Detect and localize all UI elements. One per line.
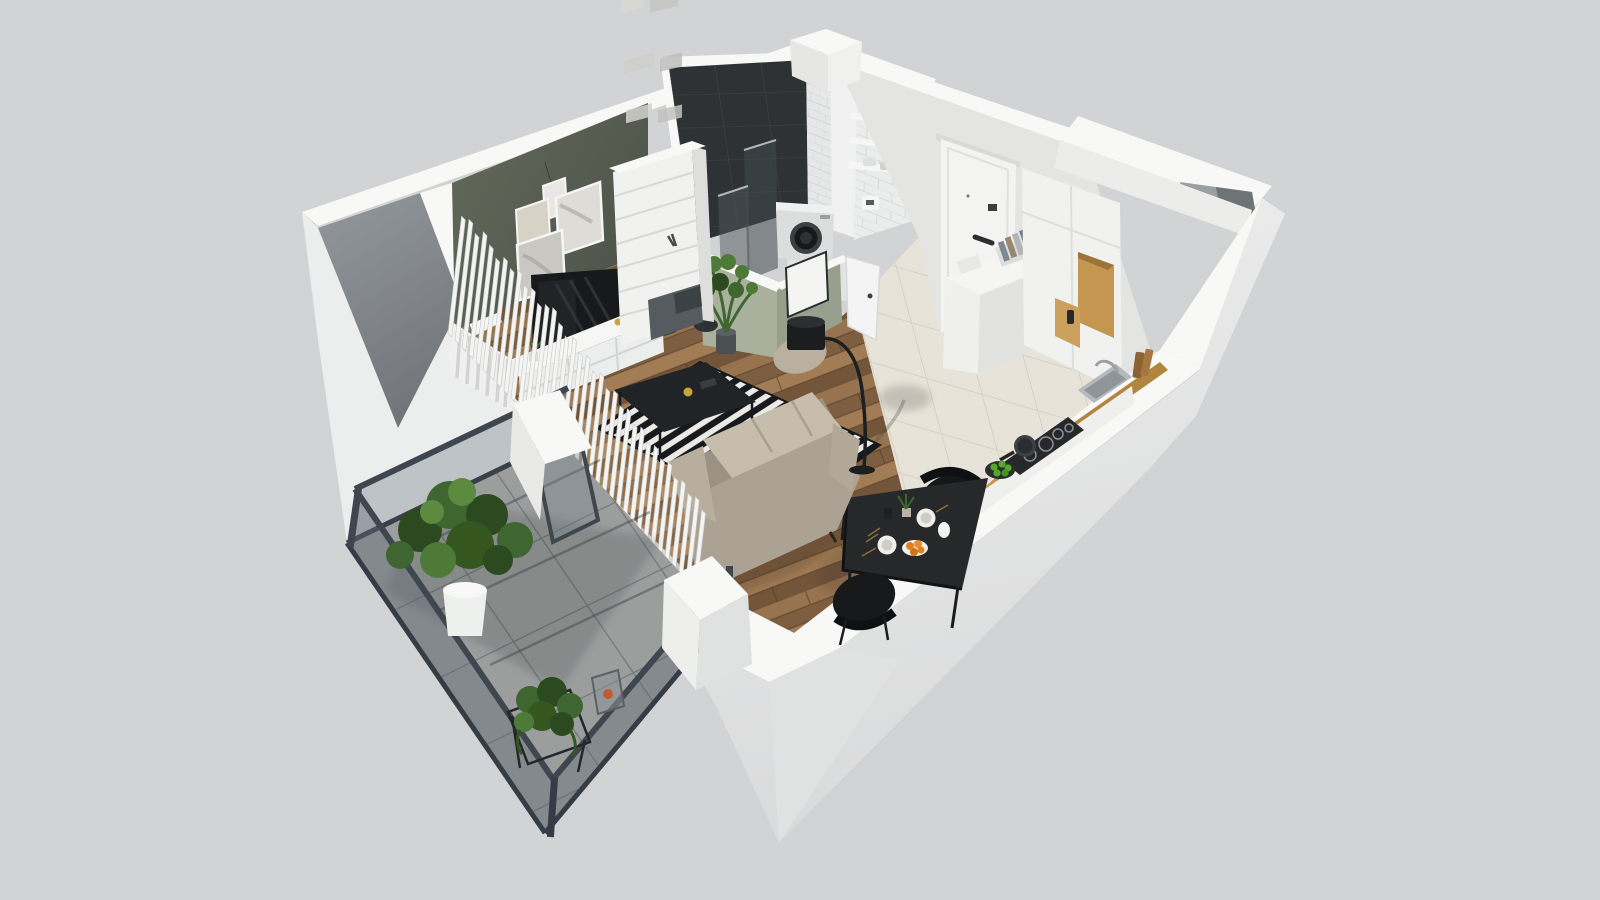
bathroom-door-handle (868, 294, 873, 299)
bathroom-open-door (846, 256, 880, 340)
washer-drum-inner (800, 232, 812, 244)
orange-fruit-plate (902, 540, 928, 556)
kettle (1067, 310, 1074, 324)
washer-display (820, 215, 830, 219)
white-jug (938, 522, 950, 538)
floorplan-render-stage (0, 0, 1600, 900)
sideboard-front (943, 278, 980, 374)
flush-buttons (866, 200, 874, 205)
candle (684, 388, 693, 397)
door-peephole (967, 195, 970, 198)
towel-1 (863, 158, 876, 166)
lamp-shadow-on-tile (879, 385, 931, 411)
apartment-isometric-scene (0, 0, 1600, 900)
arc-lamp-base (849, 466, 875, 475)
black-mug (884, 508, 892, 519)
door-lock (988, 204, 997, 211)
candle-lantern (592, 670, 624, 714)
lamp-shade-top (787, 316, 825, 328)
lantern-candle (603, 689, 613, 699)
